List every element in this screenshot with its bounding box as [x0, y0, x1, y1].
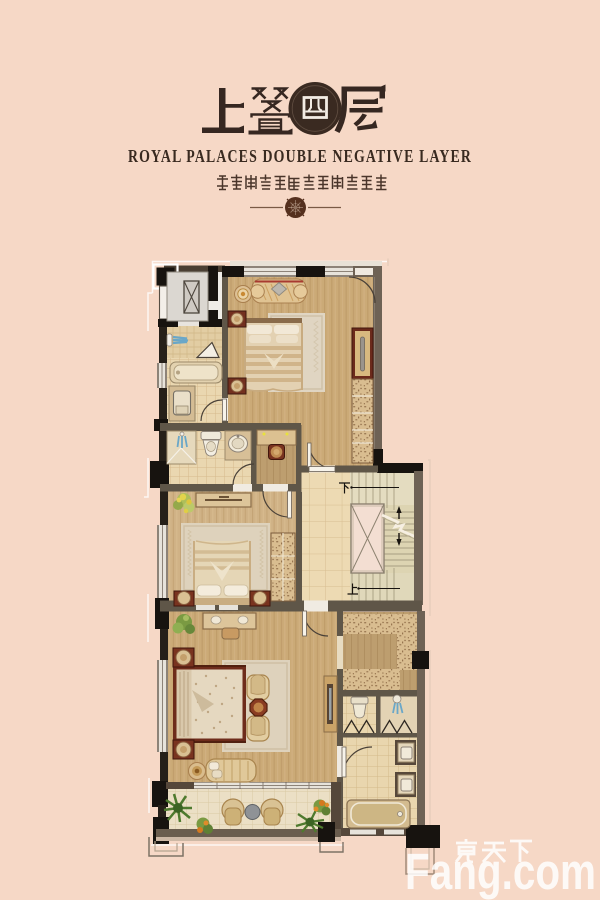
- svg-text:ROYAL PALACES DOUBLE NEGATIVE: ROYAL PALACES DOUBLE NEGATIVE LAYER: [128, 146, 472, 166]
- svg-text:Fang.com: Fang.com: [405, 843, 596, 900]
